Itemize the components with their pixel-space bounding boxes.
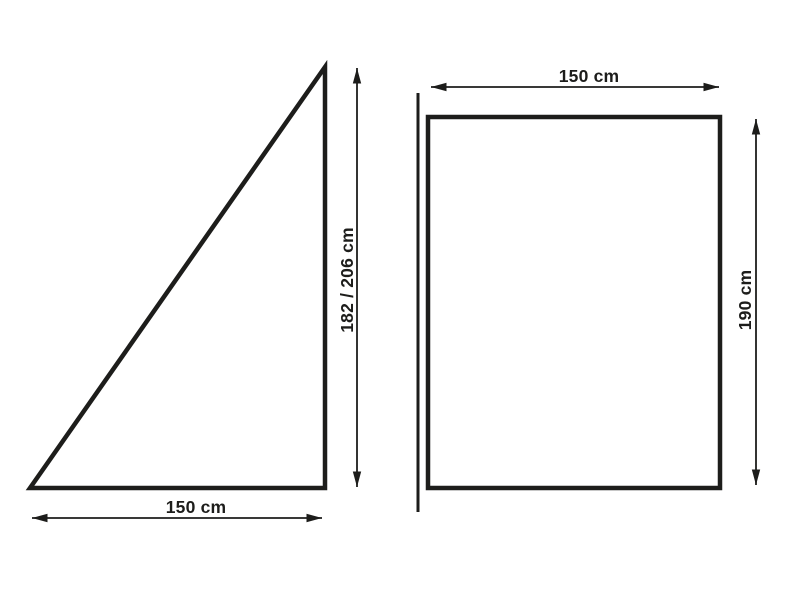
rectangle-width-label: 150 cm <box>559 66 620 86</box>
diagram-canvas: 182 / 206 cm 150 cm 150 cm 190 cm <box>0 0 800 600</box>
rectangle-panel-outline <box>428 117 720 488</box>
dimension-diagram: 182 / 206 cm 150 cm 150 cm 190 cm <box>0 0 800 600</box>
rectangle-height-label: 190 cm <box>735 270 755 331</box>
triangle-panel-outline <box>30 67 325 488</box>
triangle-width-label: 150 cm <box>166 497 227 517</box>
triangle-height-label: 182 / 206 cm <box>337 227 357 333</box>
